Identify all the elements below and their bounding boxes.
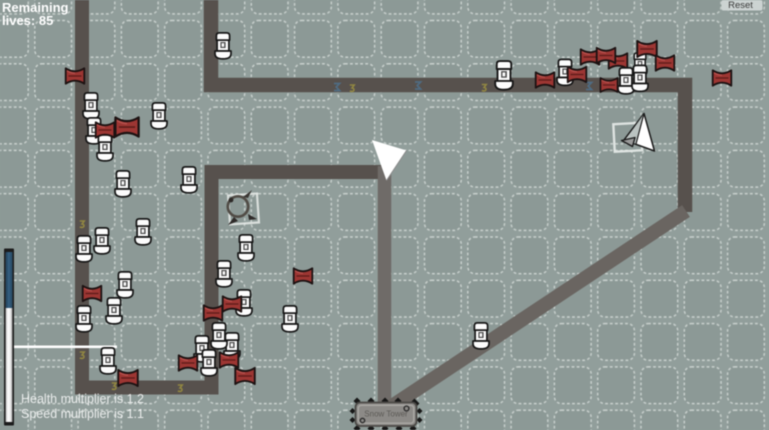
svg-text:lives: 85: lives: 85 (2, 13, 53, 28)
svg-text:Speed multiplier is 1.1: Speed multiplier is 1.1 (21, 407, 144, 421)
svg-text:Reset: Reset (728, 0, 753, 11)
svg-text:Snow Tower: Snow Tower (364, 410, 408, 419)
svg-text:Health multiplier is 1.2: Health multiplier is 1.2 (21, 392, 144, 406)
